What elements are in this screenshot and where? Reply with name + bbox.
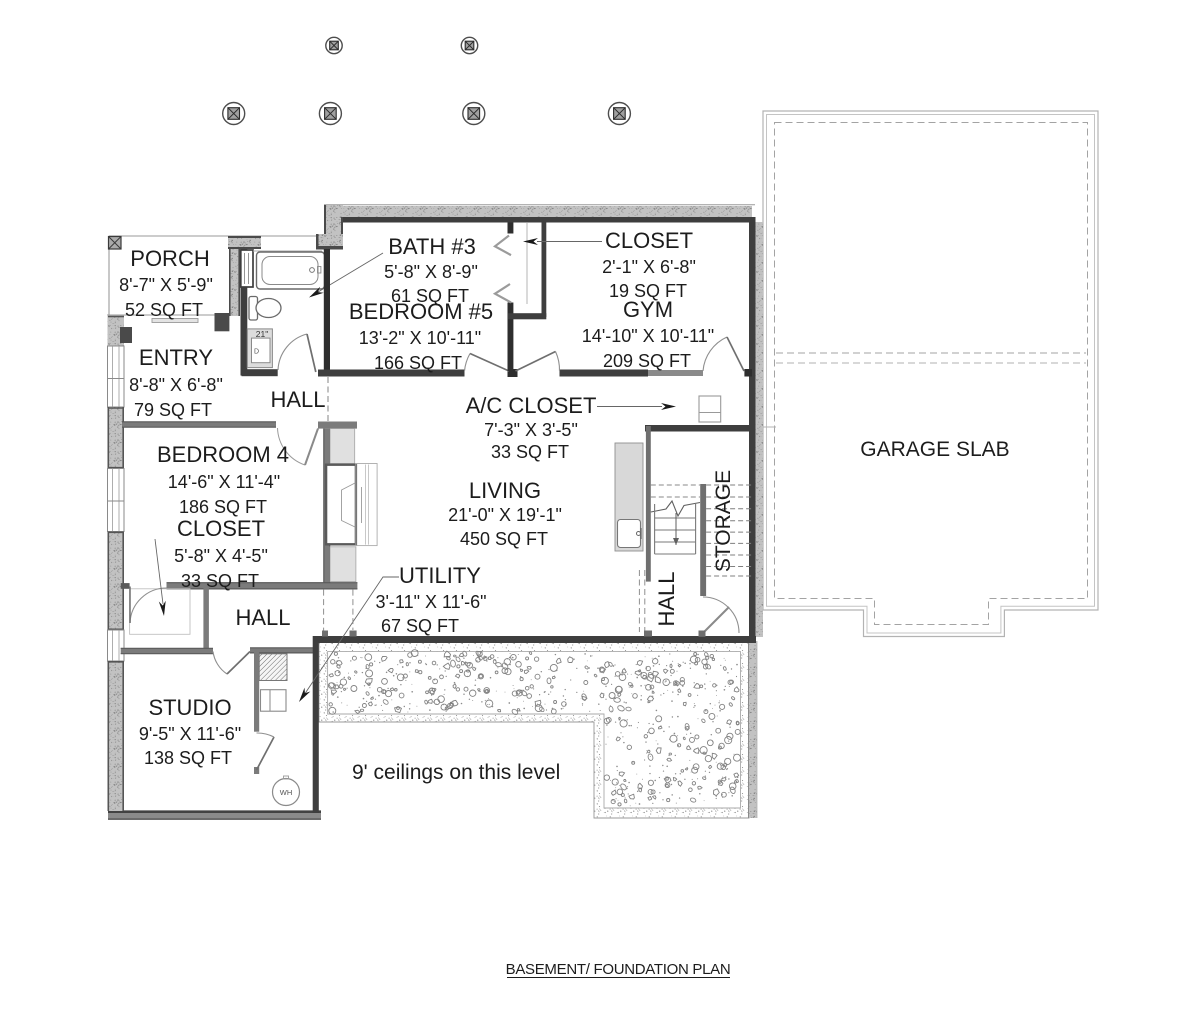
svg-text:BATH #3: BATH #3 <box>388 234 476 259</box>
svg-text:D: D <box>254 349 259 356</box>
svg-text:BASEMENT/ FOUNDATION PLAN: BASEMENT/ FOUNDATION PLAN <box>506 961 731 978</box>
svg-text:9'-5" X 11'-6": 9'-5" X 11'-6" <box>139 724 241 744</box>
svg-text:PORCH: PORCH <box>130 246 209 271</box>
svg-text:CLOSET: CLOSET <box>177 516 265 541</box>
svg-text:HALL: HALL <box>235 605 290 630</box>
svg-text:3'-11" X 11'-6": 3'-11" X 11'-6" <box>375 592 486 612</box>
svg-text:2'-1" X 6'-8": 2'-1" X 6'-8" <box>602 257 696 277</box>
svg-text:A/C CLOSET: A/C CLOSET <box>466 393 597 418</box>
svg-text:STUDIO: STUDIO <box>148 695 231 720</box>
svg-text:13'-2" X 10'-11": 13'-2" X 10'-11" <box>359 328 481 348</box>
svg-text:21": 21" <box>256 329 268 339</box>
svg-text:450 SQ FT: 450 SQ FT <box>460 529 548 549</box>
svg-text:8'-7" X 5'-9": 8'-7" X 5'-9" <box>119 275 213 295</box>
svg-text:7'-3" X 3'-5": 7'-3" X 3'-5" <box>484 420 578 440</box>
svg-text:33 SQ FT: 33 SQ FT <box>491 442 569 462</box>
svg-text:HALL: HALL <box>654 571 679 626</box>
svg-text:GARAGE SLAB: GARAGE SLAB <box>860 438 1009 461</box>
svg-text:52 SQ FT: 52 SQ FT <box>125 300 203 320</box>
svg-text:LIVING: LIVING <box>469 478 541 503</box>
svg-text:STORAGE: STORAGE <box>712 470 735 572</box>
svg-text:14'-10" X 10'-11": 14'-10" X 10'-11" <box>582 326 714 346</box>
svg-text:ENTRY: ENTRY <box>139 345 213 370</box>
svg-text:5'-8" X 8'-9": 5'-8" X 8'-9" <box>384 262 478 282</box>
svg-text:BEDROOM #5: BEDROOM #5 <box>349 299 493 324</box>
svg-text:GYM: GYM <box>623 297 673 322</box>
svg-text:138 SQ FT: 138 SQ FT <box>144 748 232 768</box>
svg-text:33 SQ FT: 33 SQ FT <box>181 571 259 591</box>
svg-text:WH: WH <box>280 788 293 797</box>
svg-text:21'-0" X 19'-1": 21'-0" X 19'-1" <box>448 505 562 525</box>
svg-text:14'-6" X 11'-4": 14'-6" X 11'-4" <box>168 472 280 492</box>
svg-text:UTILITY: UTILITY <box>399 563 481 588</box>
svg-text:9' ceilings on this level: 9' ceilings on this level <box>352 761 560 784</box>
svg-text:79 SQ FT: 79 SQ FT <box>134 400 212 420</box>
svg-text:166 SQ FT: 166 SQ FT <box>374 353 462 373</box>
svg-text:HALL: HALL <box>270 387 325 412</box>
svg-text:5'-8" X 4'-5": 5'-8" X 4'-5" <box>174 546 268 566</box>
svg-text:8'-8" X 6'-8": 8'-8" X 6'-8" <box>129 375 223 395</box>
svg-text:CLOSET: CLOSET <box>605 228 693 253</box>
svg-text:67 SQ FT: 67 SQ FT <box>381 616 459 636</box>
svg-text:209 SQ FT: 209 SQ FT <box>603 351 691 371</box>
svg-text:186 SQ FT: 186 SQ FT <box>179 497 267 517</box>
svg-text:BEDROOM 4: BEDROOM 4 <box>157 442 289 467</box>
